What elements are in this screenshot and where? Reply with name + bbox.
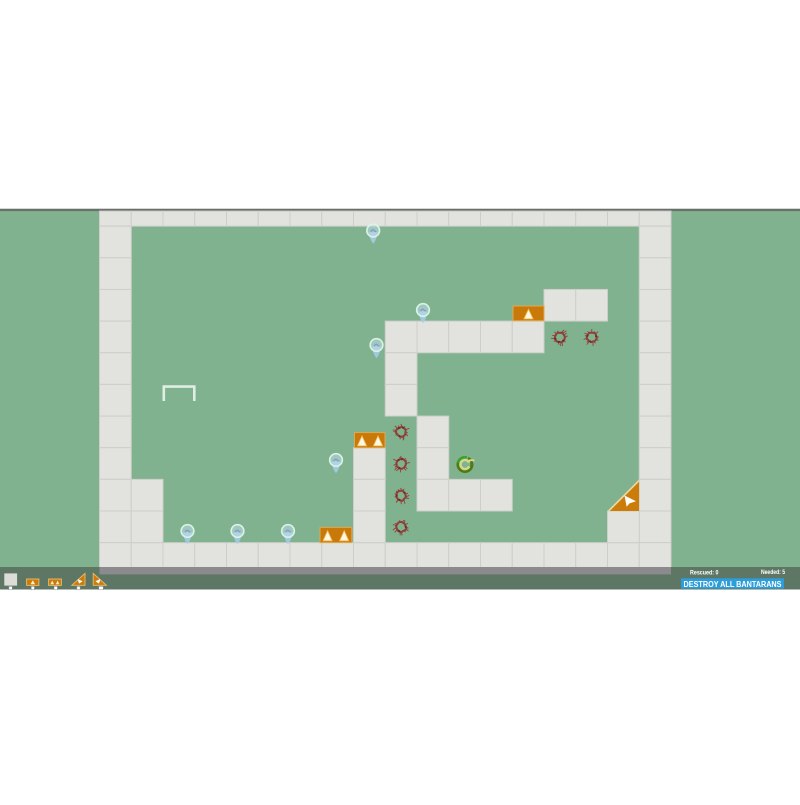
svg-text:Needed: 5: Needed: 5 [761, 569, 785, 576]
svg-text:Rescued: 0: Rescued: 0 [690, 570, 719, 577]
svg-text:DESTROY ALL BANTARANS: DESTROY ALL BANTARANS [684, 580, 782, 589]
